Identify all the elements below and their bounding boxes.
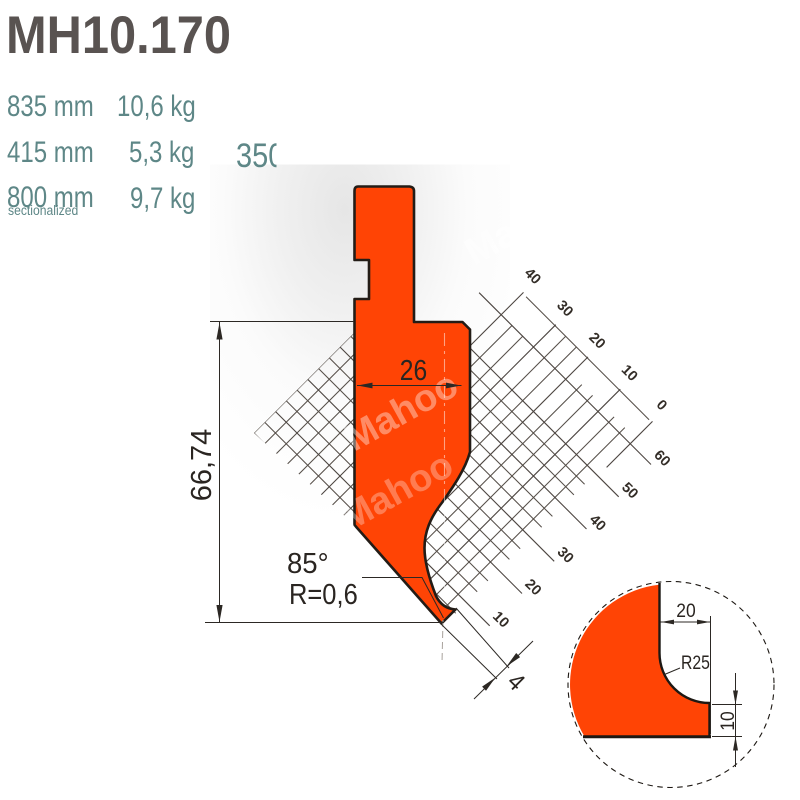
svg-text:350: 350 bbox=[236, 136, 284, 175]
